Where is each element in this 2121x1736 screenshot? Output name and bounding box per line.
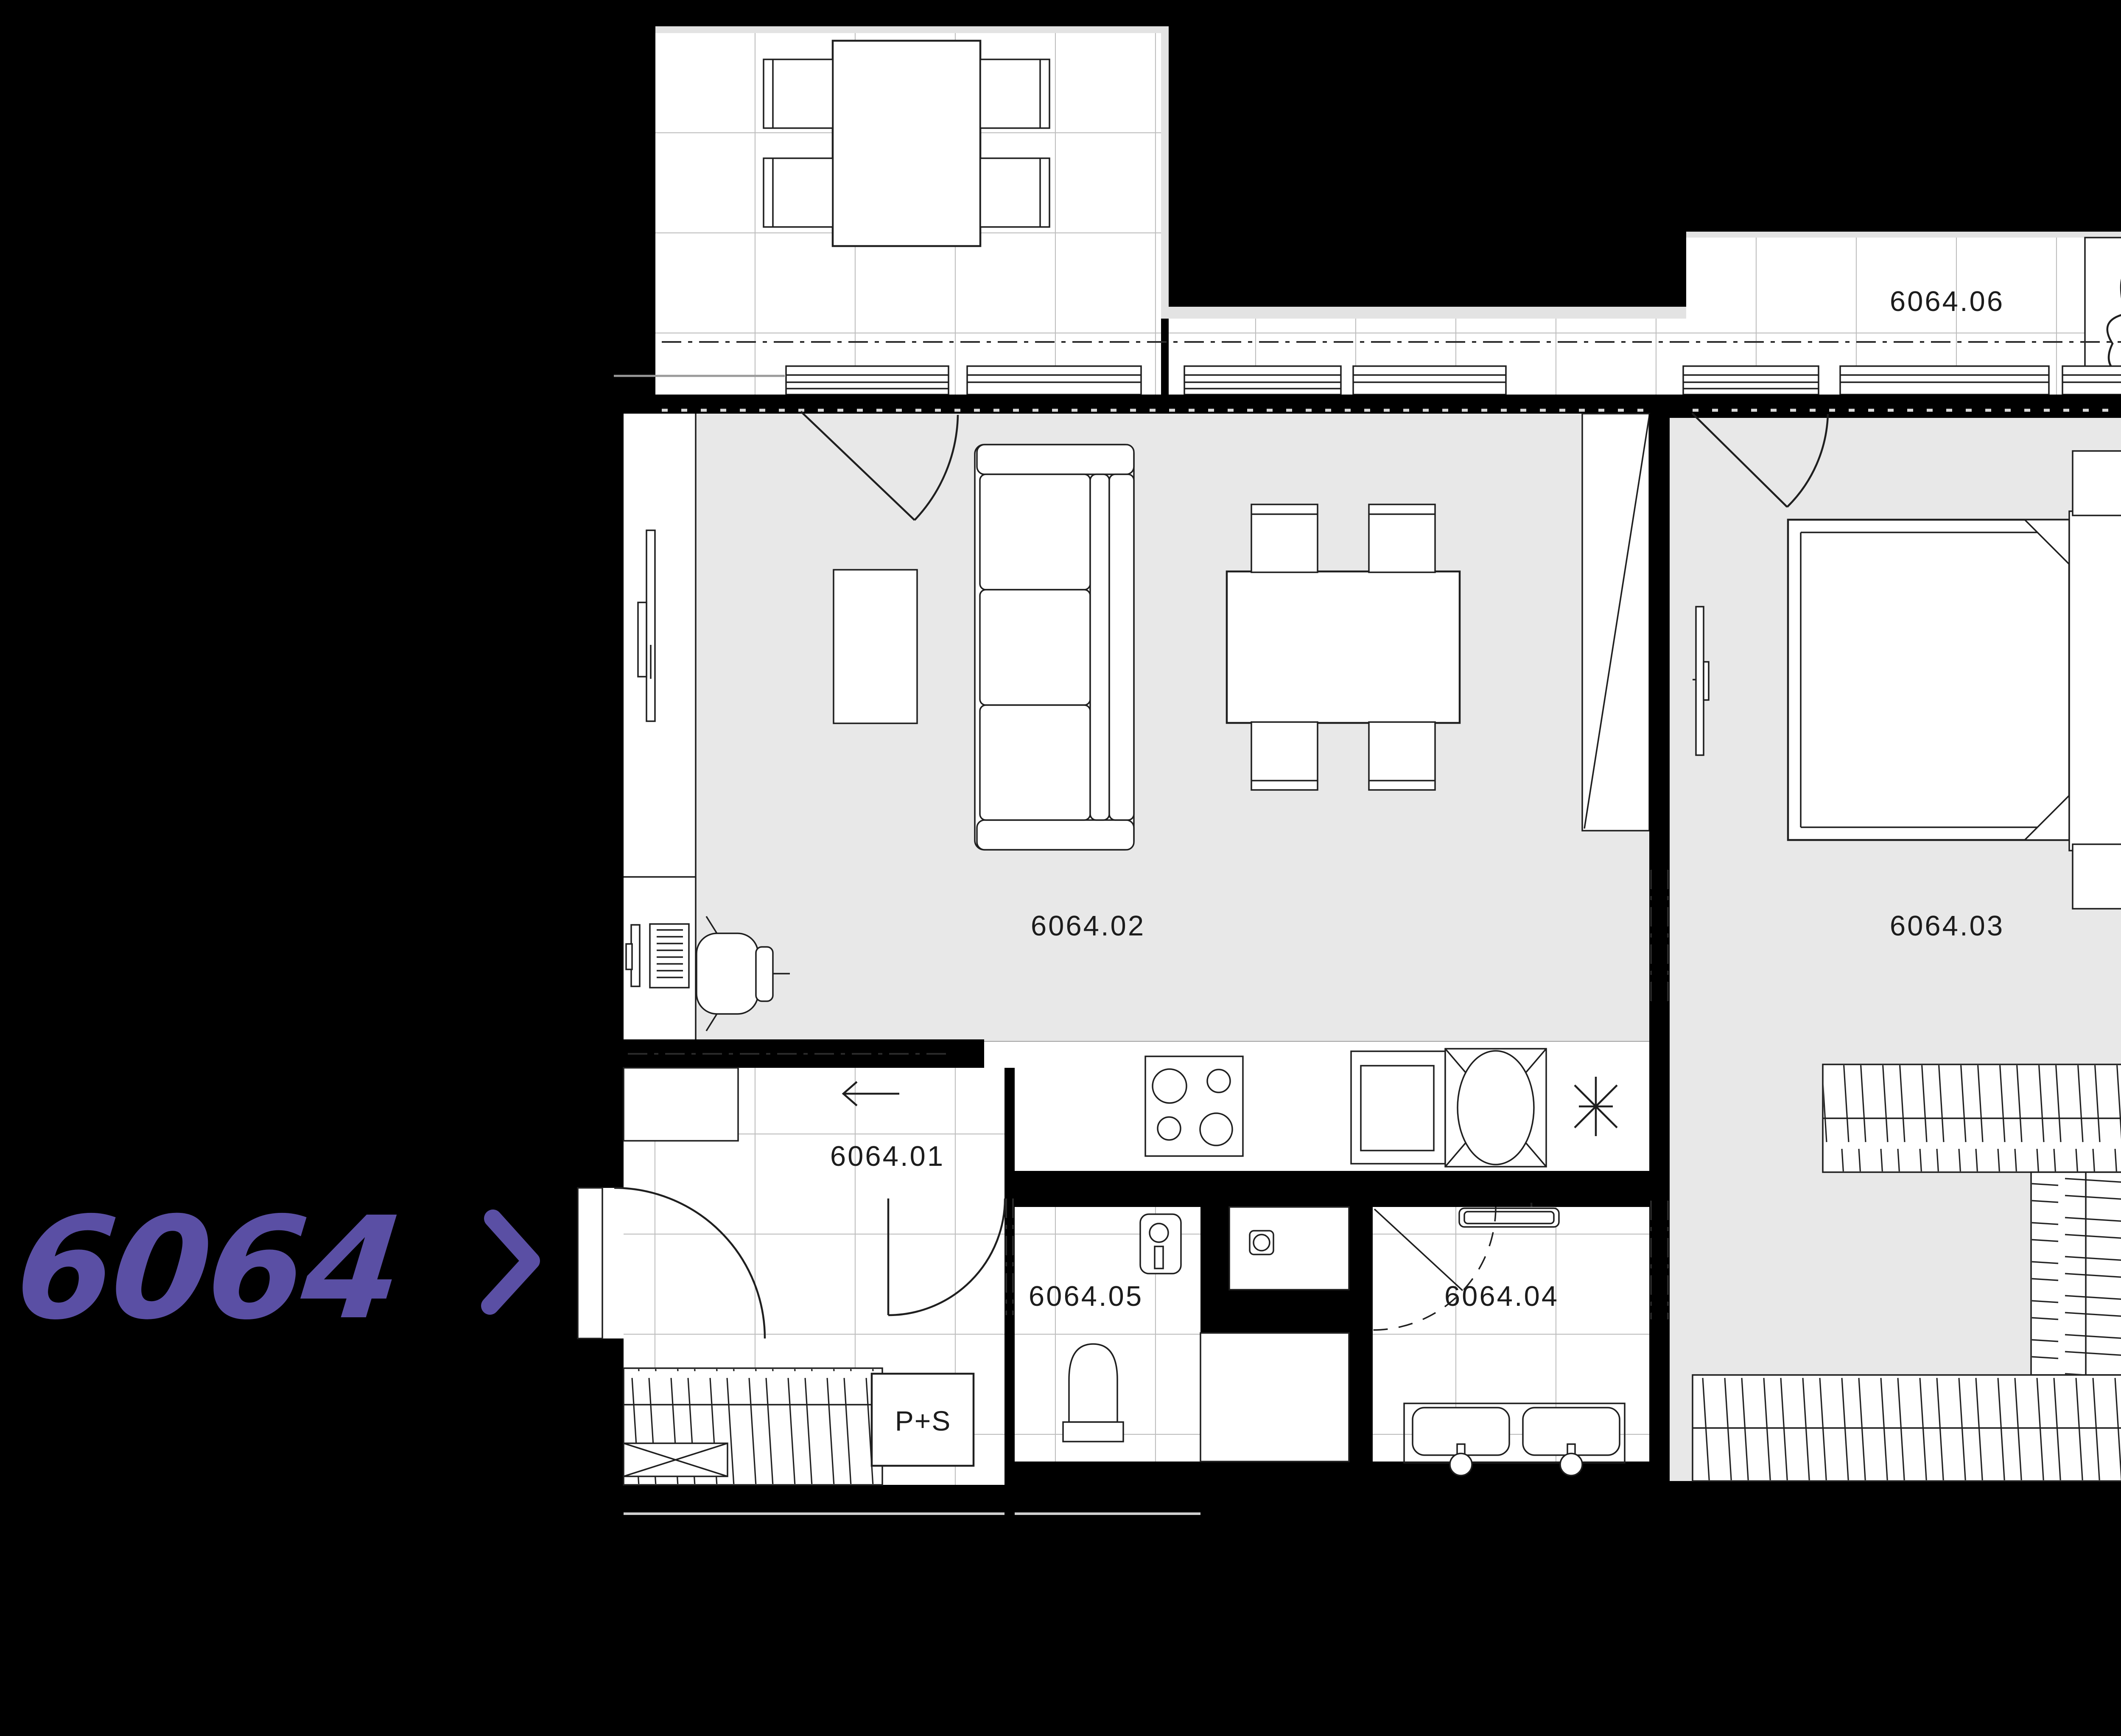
nightstand — [2073, 844, 2121, 909]
dining-chair — [1369, 504, 1435, 572]
outdoor-table — [833, 41, 980, 246]
room-label-bedroom: 6064.03 — [1890, 910, 2004, 942]
outdoor-chair — [764, 59, 833, 128]
window — [1683, 366, 1819, 395]
dining-chair — [1251, 722, 1318, 790]
desktop-computer-icon — [626, 924, 689, 988]
balcony-top-edge — [1686, 232, 2121, 238]
washer-dryer-label: P+S — [895, 1405, 951, 1436]
nightstand — [2073, 451, 2121, 515]
floor-drain-icon — [1250, 1231, 1273, 1254]
bed-icon — [1788, 451, 2121, 909]
hall-cabinet — [624, 1068, 738, 1141]
unit-number[interactable]: 6064 — [8, 1187, 408, 1351]
window — [786, 366, 949, 395]
room-label-bathroom: 6064.04 — [1444, 1280, 1559, 1312]
room-label-living: 6064.02 — [1031, 910, 1145, 942]
window — [1184, 366, 1341, 395]
window — [1353, 366, 1506, 395]
dining-chair — [1251, 504, 1318, 572]
outdoor-chair — [980, 158, 1049, 227]
kitchen-counter — [984, 1042, 1649, 1171]
outdoor-chair — [764, 158, 833, 227]
sofa-icon — [975, 445, 1134, 850]
coffee-table-icon — [834, 570, 917, 723]
entrance-hall: 6064.01 P+S — [578, 1068, 1013, 1514]
living-floor — [696, 414, 1649, 1042]
appliance-icon — [1445, 1049, 1546, 1167]
shaft-upper — [1229, 1207, 1349, 1290]
bedroom-wardrobe-bottom — [1693, 1375, 2121, 1481]
mass-bottom-edge — [1161, 307, 1686, 319]
bathroom: 6064.04 — [1373, 1207, 1649, 1476]
washbasin-icon — [1140, 1214, 1181, 1274]
room-label-hall: 6064.01 — [830, 1140, 945, 1172]
sink-icon — [1351, 1051, 1445, 1164]
toilet-icon — [1063, 1344, 1123, 1442]
washer-dryer-box: P+S — [872, 1374, 974, 1466]
shoe-cabinet — [624, 1443, 728, 1476]
room-label-balcony: 6064.06 — [1890, 286, 2004, 317]
window — [2062, 366, 2121, 395]
window — [1840, 366, 2049, 395]
floor-plan-canvas: 6064.06 — [0, 0, 2121, 1736]
tall-cabinet — [1582, 414, 1649, 831]
bedroom-wardrobe-right — [2031, 1172, 2121, 1375]
mass-left-edge — [1161, 33, 1169, 319]
headboard — [2069, 511, 2121, 851]
terrace-top-edge — [655, 26, 1169, 33]
window — [967, 366, 1141, 395]
living-room: 6064.02 — [624, 412, 1649, 1042]
room-label-wc: 6064.05 — [1029, 1280, 1143, 1312]
dining-chair — [1369, 722, 1435, 790]
kitchen — [984, 1042, 1649, 1171]
hob-icon — [1145, 1056, 1243, 1156]
outdoor-chair — [980, 59, 1049, 128]
bedroom: 6064.03 — [1670, 413, 2121, 1481]
shaft-lower — [1200, 1333, 1349, 1462]
dining-table — [1227, 571, 1460, 723]
window-band — [614, 366, 2121, 395]
bedroom-wardrobe-top — [1823, 1064, 2121, 1172]
